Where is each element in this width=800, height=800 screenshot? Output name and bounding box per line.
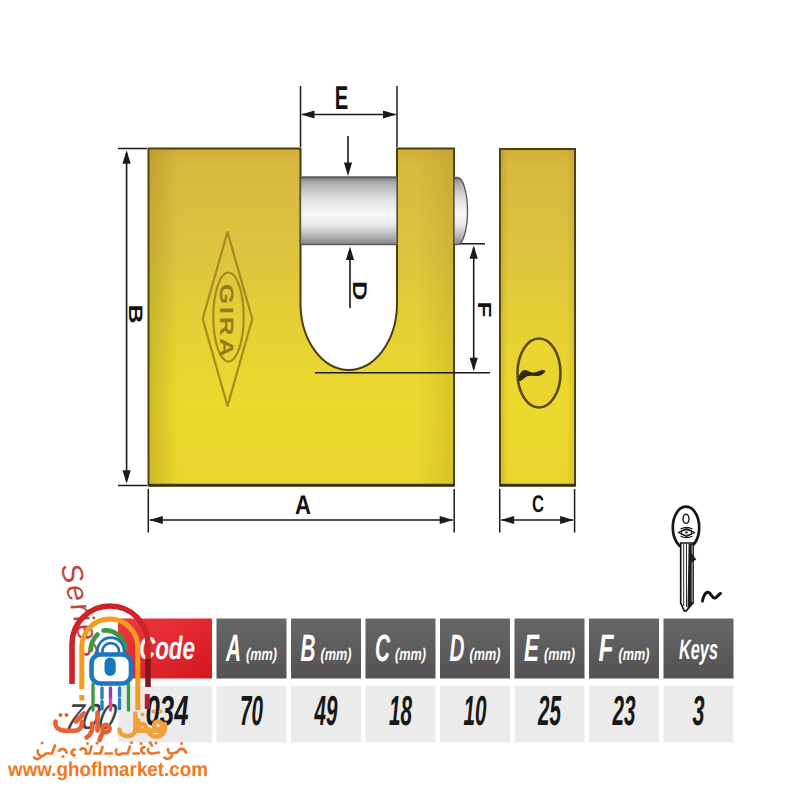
svg-text:C: C <box>532 491 544 518</box>
svg-text:(mm): (mm) <box>470 645 501 664</box>
svg-text:(mm): (mm) <box>321 645 352 664</box>
svg-text:49: 49 <box>314 687 338 734</box>
svg-text:D: D <box>450 628 465 670</box>
svg-text:3: 3 <box>693 687 705 734</box>
svg-text:25: 25 <box>538 687 562 734</box>
svg-text:(mm): (mm) <box>619 645 650 664</box>
svg-text:A: A <box>225 628 241 670</box>
svg-text:C: C <box>375 628 390 670</box>
svg-text:70: 70 <box>240 687 263 734</box>
svg-text:(mm): (mm) <box>246 645 277 664</box>
svg-text:B: B <box>301 628 316 670</box>
svg-text:www.ghoflmarket.com: www.ghoflmarket.com <box>7 759 208 781</box>
svg-text:E: E <box>524 628 540 670</box>
svg-text:E: E <box>335 79 349 116</box>
svg-text:(mm): (mm) <box>544 645 575 664</box>
svg-text:GIRA: GIRA <box>215 284 237 359</box>
svg-text:D: D <box>348 281 370 301</box>
svg-text:23: 23 <box>612 687 635 734</box>
svg-text:18: 18 <box>389 687 412 734</box>
svg-text:10: 10 <box>464 687 487 734</box>
svg-text:F: F <box>599 628 615 670</box>
svg-text:A: A <box>295 490 311 520</box>
svg-text:Keys: Keys <box>679 634 718 665</box>
svg-text:F: F <box>474 302 496 318</box>
svg-text:(mm): (mm) <box>395 645 426 664</box>
svg-text:B: B <box>124 305 146 324</box>
